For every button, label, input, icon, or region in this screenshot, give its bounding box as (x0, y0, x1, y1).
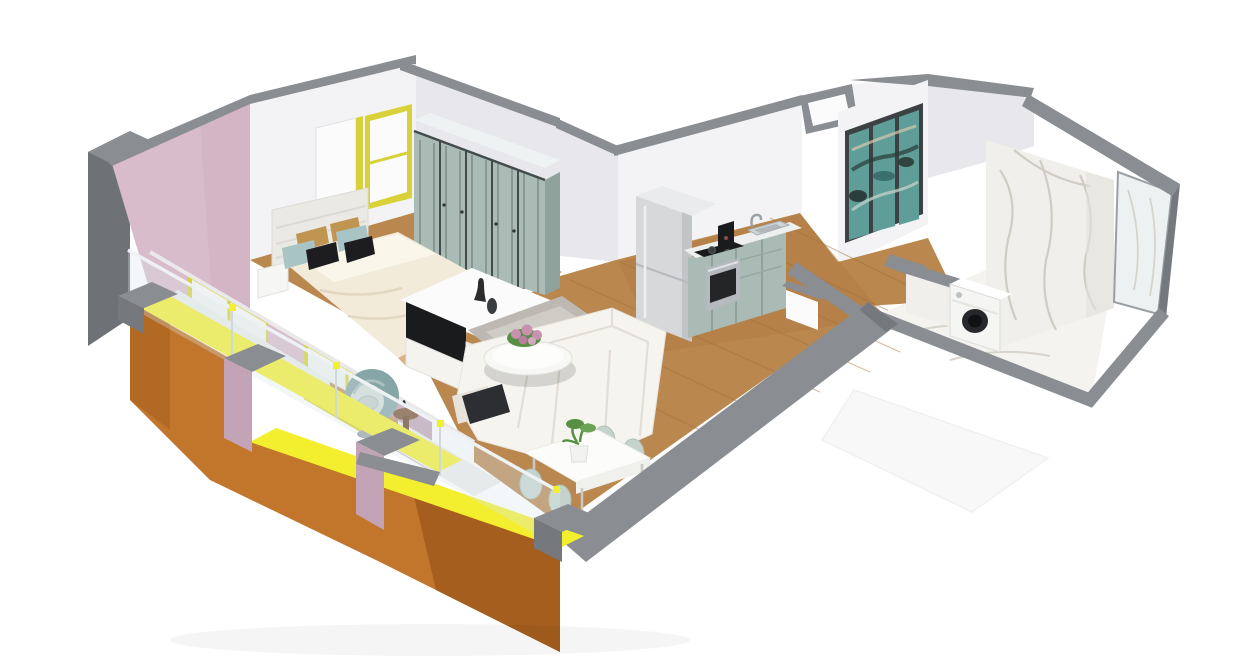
vase (487, 298, 497, 314)
post-cap (437, 420, 444, 427)
post-cap (333, 362, 340, 369)
plant-pot (570, 446, 588, 462)
marble-shade (1086, 172, 1114, 318)
flower (528, 337, 536, 345)
burner (709, 247, 716, 254)
floor-plan-render (0, 0, 1242, 666)
washer-door-glass (968, 315, 982, 328)
wardrobe-handle (512, 229, 515, 232)
wardrobe-handle (494, 222, 497, 225)
wardrobe-handle (442, 203, 445, 206)
nightstand (258, 262, 288, 298)
coffee-machine-detail (724, 236, 728, 240)
painting-texture (898, 157, 914, 167)
painting-texture (873, 171, 895, 181)
wardrobe-handle (460, 210, 463, 213)
floor-plan-canvas (0, 0, 1242, 666)
wardrobe-side (545, 172, 560, 295)
ground-shadow (170, 624, 690, 656)
post-cap (553, 486, 560, 493)
coffee-table-surface (492, 343, 564, 369)
flower (522, 325, 533, 336)
lower-terrace-outline (822, 390, 1048, 512)
flower (519, 336, 528, 345)
plant-leaves (580, 424, 596, 433)
painting-texture (849, 190, 867, 202)
post-cap (229, 304, 236, 311)
washer-dial (956, 292, 962, 298)
pillar-face (224, 358, 252, 452)
